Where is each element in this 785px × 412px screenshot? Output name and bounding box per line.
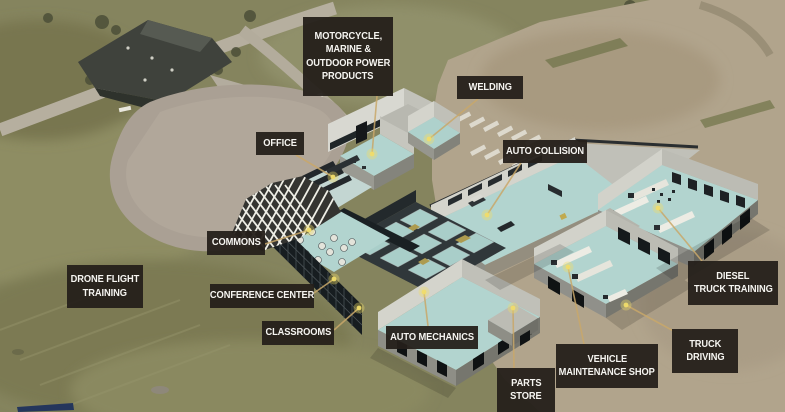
leader-dot-welding	[427, 137, 432, 142]
leader-dot-auto-collision	[485, 213, 490, 218]
leader-dot-commons	[307, 228, 312, 233]
leader-dot-parts-store	[511, 306, 516, 311]
leader-dot-classrooms	[357, 306, 362, 311]
leader-dot-motorcycle-marine-outdoor-power-products	[370, 152, 375, 157]
leader-dot-conference-center	[332, 277, 337, 282]
leader-dot-truck-driving	[624, 303, 629, 308]
leader-line-parts-store	[513, 308, 514, 368]
leader-dot-vehicle-maintenance-shop	[566, 265, 571, 270]
rock	[12, 349, 24, 355]
leader-dot-diesel-truck-training	[656, 206, 661, 211]
facility-map-screenshot: MOTORCYCLE,MARINE &OUTDOOR POWERPRODUCTS…	[0, 0, 785, 412]
leader-dot-auto-mechanics	[422, 290, 427, 295]
rock	[151, 386, 169, 394]
leader-dot-office	[331, 175, 336, 180]
aerial-rendering-scene	[0, 0, 785, 412]
